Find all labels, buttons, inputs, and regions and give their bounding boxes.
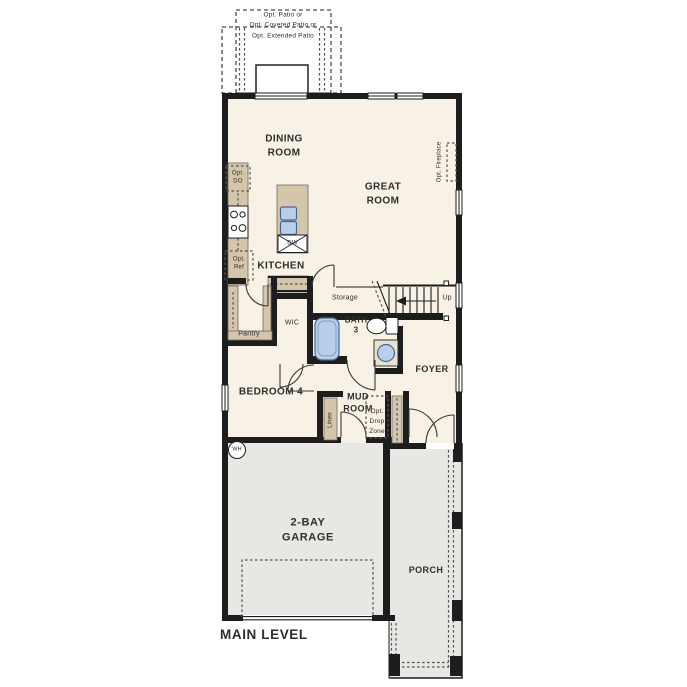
kitchen-label: KITCHEN <box>257 259 304 273</box>
dining-room-label: DINING ROOM <box>265 133 302 160</box>
dishwasher-label: DW <box>287 240 297 248</box>
bath3-label: BATH 3 <box>345 316 367 337</box>
foyer-coat-closet <box>392 396 402 443</box>
bath-sink-icon <box>374 340 398 366</box>
linen-label: Linen <box>327 412 335 428</box>
toilet-icon <box>367 318 398 335</box>
garage-label: 2-BAY GARAGE <box>282 516 334 547</box>
storage-label: Storage <box>332 293 358 302</box>
stairs-up-label: Up <box>442 293 451 302</box>
opt-drop-zone-label: Opt. Drop Zone <box>369 407 385 437</box>
porch-label: PORCH <box>409 564 444 576</box>
wic-label: WIC <box>285 318 299 327</box>
bedroom4-label: BEDROOM 4 <box>239 385 303 399</box>
patio-label: Opt. Patio or Opt. Covered Patio or Opt.… <box>249 10 316 41</box>
great-room-label: GREAT ROOM <box>365 181 401 208</box>
main-level-title: MAIN LEVEL <box>220 626 308 644</box>
opt-ref-label: Opt. Ref <box>233 257 245 272</box>
patio-step <box>256 65 308 95</box>
garage-door <box>243 617 372 620</box>
opt-fireplace-label: Opt. Fireplace <box>436 142 444 182</box>
floor-plan-drawing <box>0 0 687 687</box>
water-heater-label: WH <box>232 446 242 453</box>
bathtub-icon <box>315 318 339 360</box>
pantry-label: Pantry <box>238 329 259 338</box>
floor-plan: Opt. Patio or Opt. Covered Patio or Opt.… <box>0 0 687 687</box>
cooktop-icon <box>228 206 248 238</box>
foyer-label: FOYER <box>415 363 448 375</box>
opt-double-oven-label: Opt. DO <box>232 171 244 186</box>
